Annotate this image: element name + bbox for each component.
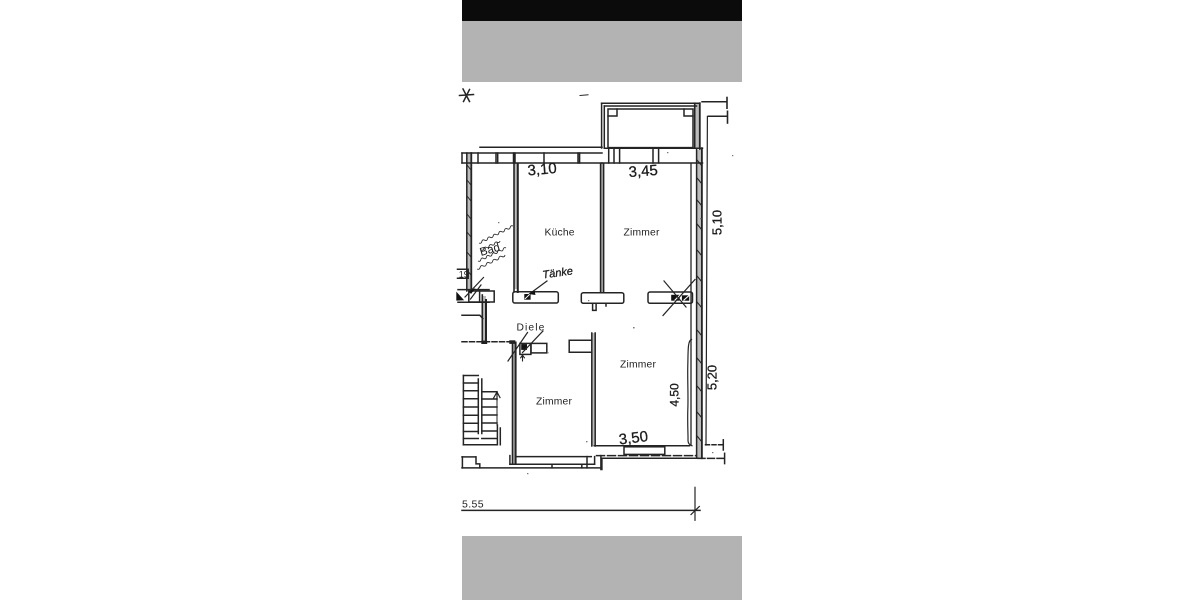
svg-text:5.55: 5.55 [462, 499, 484, 511]
svg-text:5,20: 5,20 [705, 365, 720, 390]
svg-text:4,50: 4,50 [668, 383, 682, 407]
svg-text:3,50: 3,50 [618, 428, 649, 448]
svg-text:Küche: Küche [545, 228, 575, 239]
svg-text:19: 19 [459, 269, 469, 279]
svg-text:Diele: Diele [517, 323, 546, 334]
svg-text:Bad: Bad [479, 242, 502, 259]
svg-text:Zimmer: Zimmer [624, 228, 660, 239]
svg-text:3,45: 3,45 [628, 162, 658, 181]
svg-text:3,10: 3,10 [527, 160, 558, 179]
svg-text:Zimmer: Zimmer [536, 397, 572, 408]
svg-text:Zimmer: Zimmer [620, 360, 656, 371]
svg-text:5,10: 5,10 [710, 210, 725, 235]
svg-text:Tänke: Tänke [542, 265, 574, 281]
